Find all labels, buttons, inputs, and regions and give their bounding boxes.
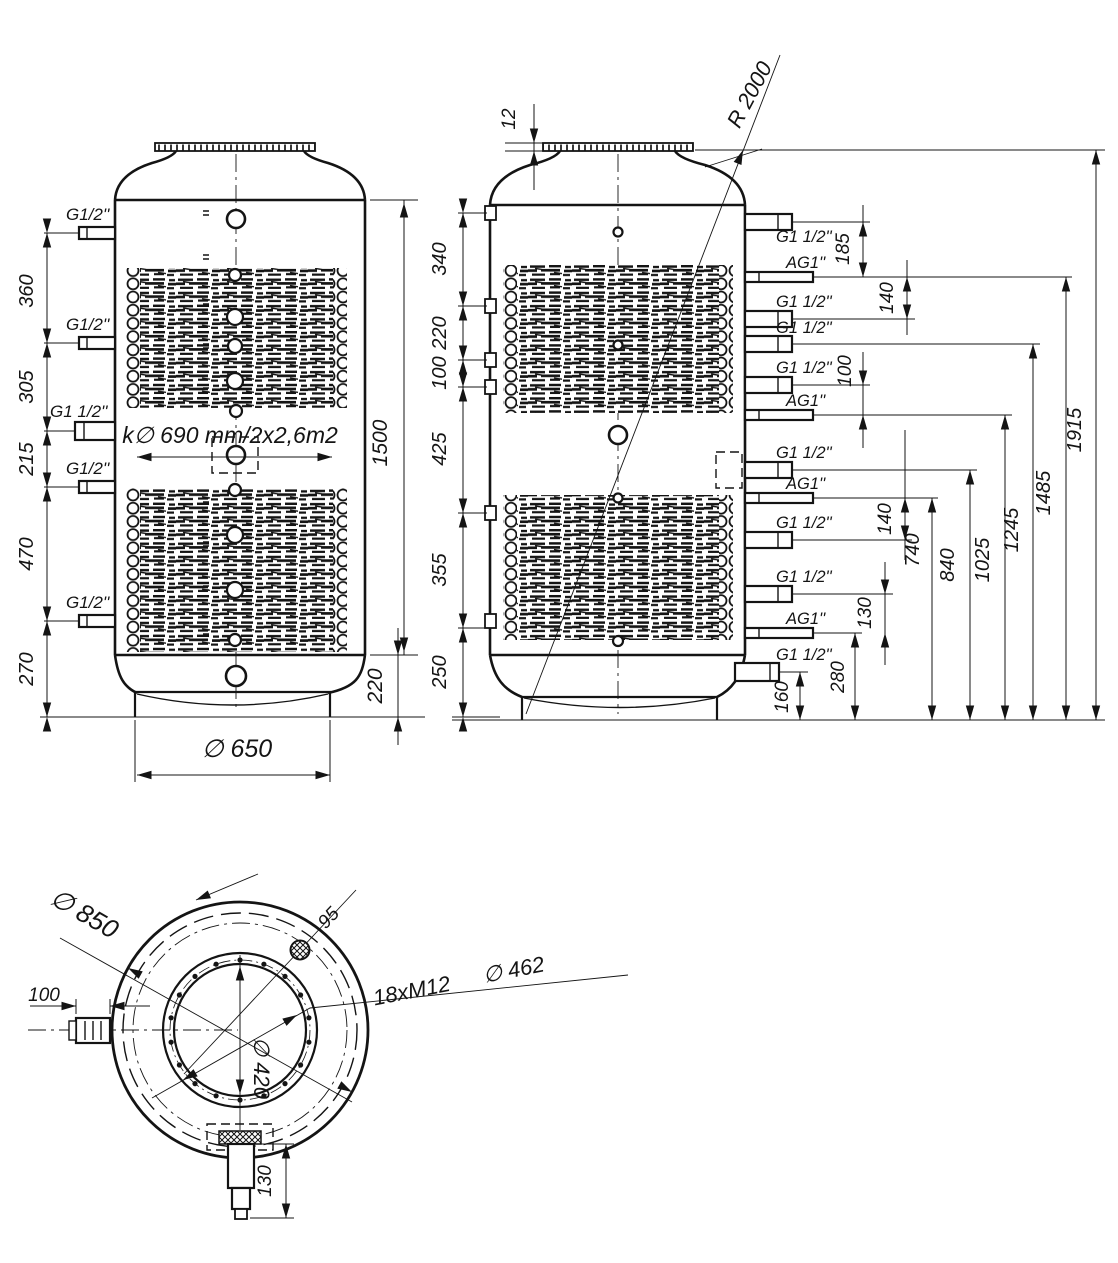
side-dim-840: 840 (937, 548, 959, 581)
side-port-12 (735, 663, 779, 681)
side-port-6 (745, 410, 813, 420)
side-dim-280: 280 (828, 661, 849, 694)
bottom-dim-100: 100 (28, 985, 60, 1006)
side-port-5-label: G1 1/2'' (776, 359, 833, 377)
side-port-8 (745, 493, 813, 503)
side-dim-12: 12 (499, 108, 520, 130)
side-port-4 (745, 336, 792, 352)
side-dim-1485: 1485 (1033, 470, 1055, 515)
front-dim-360: 360 (16, 274, 38, 307)
front-dim-270: 270 (16, 652, 38, 686)
front-dim-220: 220 (364, 668, 387, 704)
side-port-9-label: G1 1/2'' (776, 514, 833, 532)
front-port-5 (79, 615, 115, 627)
side-port-3-label: G1 1/2'' (776, 293, 833, 311)
side-top-flange (543, 143, 693, 151)
front-coil-label: k∅ 690 mm/2x2,6m2 (122, 422, 338, 448)
side-port-8-label: AG1'' (785, 475, 826, 493)
side-dim-140a: 140 (877, 282, 898, 314)
front-port-4 (79, 481, 115, 493)
side-dim-220: 220 (429, 316, 451, 350)
side-port-4-label: G1 1/2'' (776, 319, 833, 337)
side-port-11-label: AG1'' (785, 610, 826, 628)
front-dim-650: ∅ 650 (202, 735, 273, 763)
side-port-10-label: G1 1/2'' (776, 568, 833, 586)
side-port-5 (745, 377, 792, 393)
side-dim-1915: 1915 (1064, 407, 1086, 452)
side-dim-340: 340 (429, 242, 451, 275)
side-port-9 (745, 532, 792, 548)
drawing-page: G1/2'' G1/2'' G1 1/2'' G1/2'' G1/2'' 360… (0, 0, 1118, 1263)
side-dim-185: 185 (833, 233, 854, 265)
side-dim-250: 250 (429, 655, 451, 689)
side-port-1-label: G1 1/2'' (776, 228, 833, 246)
side-coil-upper (503, 265, 733, 413)
front-port-3 (75, 422, 115, 440)
front-port-2 (79, 337, 115, 349)
front-dim-215: 215 (16, 441, 38, 476)
side-dim-740: 740 (902, 533, 924, 566)
front-dim-470: 470 (16, 537, 38, 570)
bottom-dim-420: ∅ 420 (249, 1037, 274, 1100)
side-port-2 (745, 272, 813, 282)
side-dim-160: 160 (772, 681, 793, 713)
side-port-11 (745, 628, 813, 638)
side-coil-lower (503, 495, 733, 640)
front-port-3-label: G1 1/2'' (50, 402, 108, 421)
side-port-10 (745, 586, 792, 602)
side-dim-1245: 1245 (1001, 507, 1023, 552)
side-port-6-label: AG1'' (785, 392, 826, 410)
front-top-flange (155, 143, 315, 151)
side-port-7 (745, 462, 792, 478)
front-port-1 (79, 227, 115, 239)
side-dim-355: 355 (429, 552, 451, 586)
front-port-2-label: G1/2'' (66, 315, 110, 334)
side-dim-100: 100 (429, 356, 451, 389)
front-port-4-label: G1/2'' (66, 459, 110, 478)
side-port-2-label: AG1'' (785, 254, 826, 272)
front-dim-305: 305 (16, 369, 38, 403)
front-port-5-label: G1/2'' (66, 593, 110, 612)
side-dim-100b: 100 (835, 355, 856, 387)
side-dim-425: 425 (429, 431, 451, 465)
side-port-12-label: G1 1/2'' (776, 646, 833, 664)
side-dim-140b: 140 (875, 503, 896, 535)
technical-drawing: G1/2'' G1/2'' G1 1/2'' G1/2'' G1/2'' 360… (0, 0, 1118, 1263)
bottom-offset-hole (291, 941, 310, 960)
side-dim-1025: 1025 (972, 537, 994, 582)
bottom-dim-130: 130 (255, 1165, 276, 1197)
front-port-1-label: G1/2'' (66, 205, 110, 224)
front-coil-lower (126, 488, 347, 652)
side-dim-130: 130 (855, 597, 876, 629)
side-port-7-label: G1 1/2'' (776, 444, 833, 462)
front-dim-1500: 1500 (369, 419, 392, 466)
